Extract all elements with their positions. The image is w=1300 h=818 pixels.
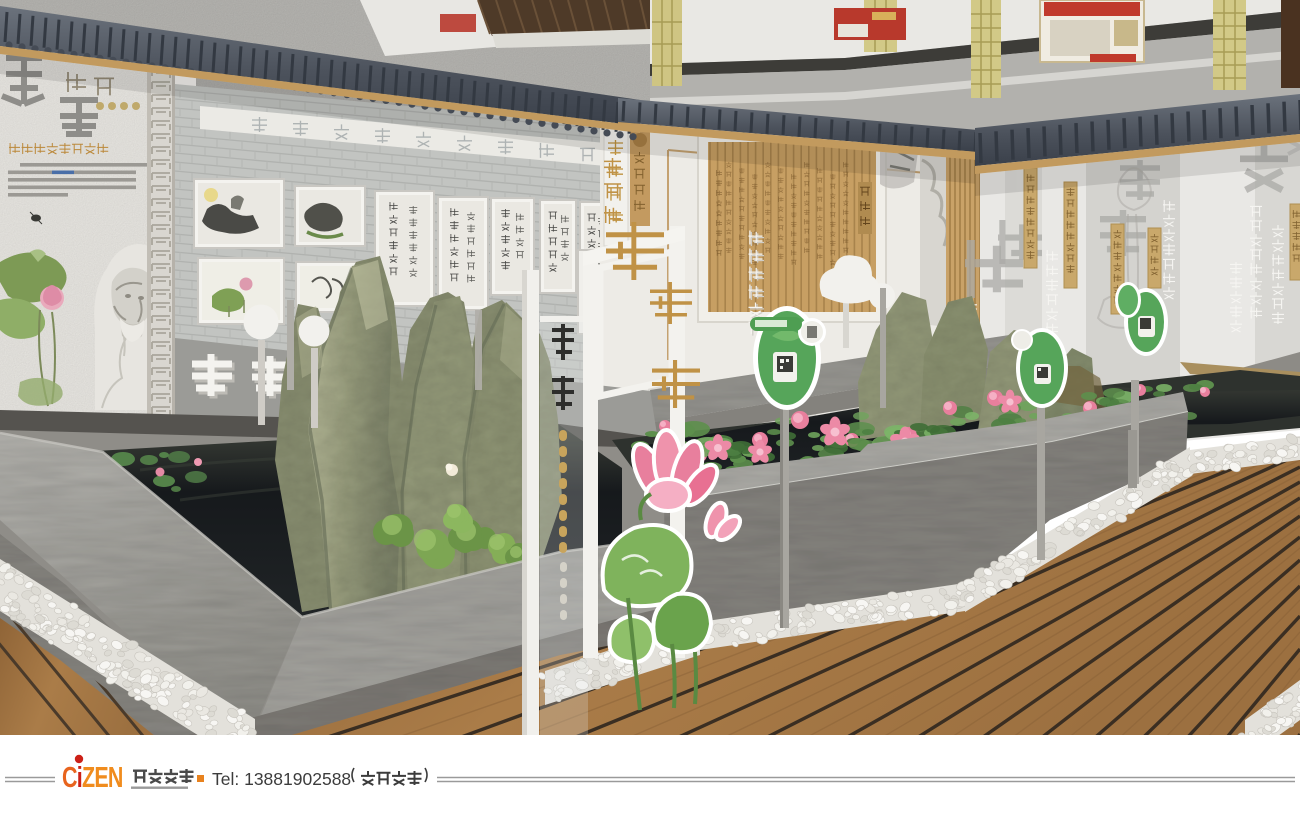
svg-text:CiZEN: CiZEN: [62, 762, 123, 794]
svg-text:Tel: 13881902588: Tel: 13881902588: [212, 769, 351, 789]
